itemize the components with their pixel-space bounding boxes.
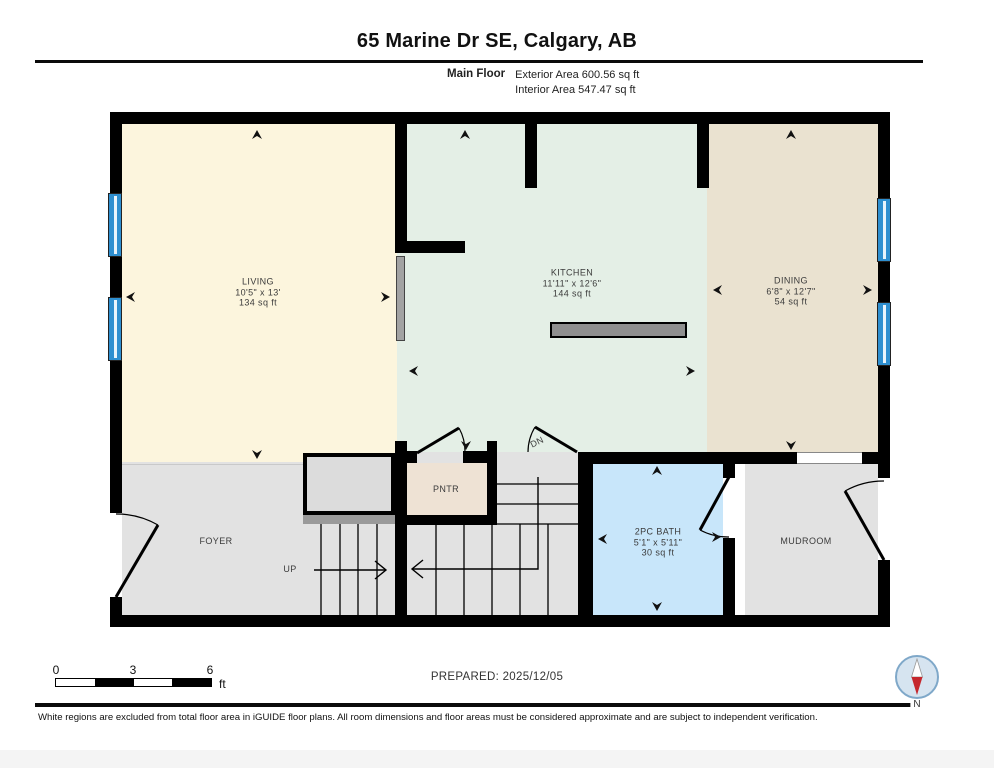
kitchen-area: 144 sq ft [543, 288, 602, 299]
wall-top [110, 112, 890, 124]
wall-pantry-top-left [407, 451, 417, 463]
dining-dims: 6'8" x 12'7" [766, 286, 815, 297]
stair-landing-edge [303, 515, 395, 524]
exterior-area: Exterior Area 600.56 sq ft [515, 68, 639, 83]
wall-bath-mudroom-top-b [862, 452, 878, 464]
dining-name: DINING [766, 275, 815, 286]
wall-left-seg3 [110, 361, 122, 513]
wall-bath-right-lower [723, 538, 735, 627]
bath-label: 2PC BATH 5'1" x 5'11" 30 sq ft [634, 526, 683, 558]
living-name: LIVING [235, 276, 281, 287]
wall-bath-left [578, 452, 593, 627]
window-left-2 [108, 297, 122, 361]
bath-area: 30 sq ft [634, 547, 683, 558]
foyer-label: FOYER [199, 536, 232, 547]
floor-plan-page: 65 Marine Dr SE, Calgary, AB Main Floor … [0, 0, 994, 768]
title-divider [35, 60, 923, 63]
wall-left-seg1 [110, 112, 122, 193]
living-dims: 10'5" x 13' [235, 287, 281, 298]
wall-stair-divider [395, 441, 407, 627]
kitchen-name: KITCHEN [543, 267, 602, 278]
living-area: 134 sq ft [235, 297, 281, 308]
wall-pantry-bottom [395, 515, 497, 525]
prepared-date: PREPARED: 2025/12/05 [0, 671, 994, 683]
page-title: 65 Marine Dr SE, Calgary, AB [0, 30, 994, 53]
living-label: LIVING 10'5" x 13' 134 sq ft [235, 276, 281, 308]
window-left-1 [108, 193, 122, 257]
wall-bath-mudroom-top-a [578, 452, 797, 464]
footer-band [0, 750, 994, 768]
kitchen-island [550, 322, 687, 338]
dining-label: DINING 6'8" x 12'7" 54 sq ft [766, 275, 815, 307]
kitchen-dims: 11'11" x 12'6" [543, 278, 602, 289]
window-right-1 [877, 198, 891, 262]
wall-bath-right-upper [723, 452, 735, 478]
kitchen-counter [396, 256, 405, 341]
mudroom-label: MUDROOM [780, 536, 831, 547]
footer-divider [35, 703, 923, 707]
wall-bottom [110, 615, 890, 627]
compass [893, 653, 941, 701]
pantry-label: PNTR [433, 484, 459, 495]
interior-area: Interior Area 547.47 sq ft [515, 83, 639, 98]
compass-north-label: N [910, 699, 923, 710]
wall-right-seg3 [878, 366, 890, 478]
wall-kitchen-stub [525, 124, 537, 188]
dining-area: 54 sq ft [766, 296, 815, 307]
stair-landing [303, 453, 395, 515]
wall-right-seg4 [878, 560, 890, 627]
wall-left-seg2 [110, 257, 122, 297]
floor-summary: Main Floor Exterior Area 600.56 sq ft In… [447, 68, 639, 98]
window-right-2 [877, 302, 891, 366]
disclaimer-text: White regions are excluded from total fl… [38, 712, 818, 723]
wall-left-seg4 [110, 597, 122, 627]
wall-kitchen-dining-stub [697, 124, 709, 188]
floor-label: Main Floor [447, 68, 505, 98]
bath-dims: 5'1" x 5'11" [634, 537, 683, 548]
kitchen-label: KITCHEN 11'11" x 12'6" 144 sq ft [543, 267, 602, 299]
wall-pantry-right [487, 441, 497, 525]
dining-mudroom-opening [797, 452, 862, 464]
up-label: UP [283, 564, 296, 574]
wall-right-seg2 [878, 262, 890, 302]
wall-living-kitchen [395, 124, 407, 253]
wall-right-seg1 [878, 112, 890, 198]
bath-name: 2PC BATH [634, 526, 683, 537]
wall-kitchen-arm [395, 241, 465, 253]
